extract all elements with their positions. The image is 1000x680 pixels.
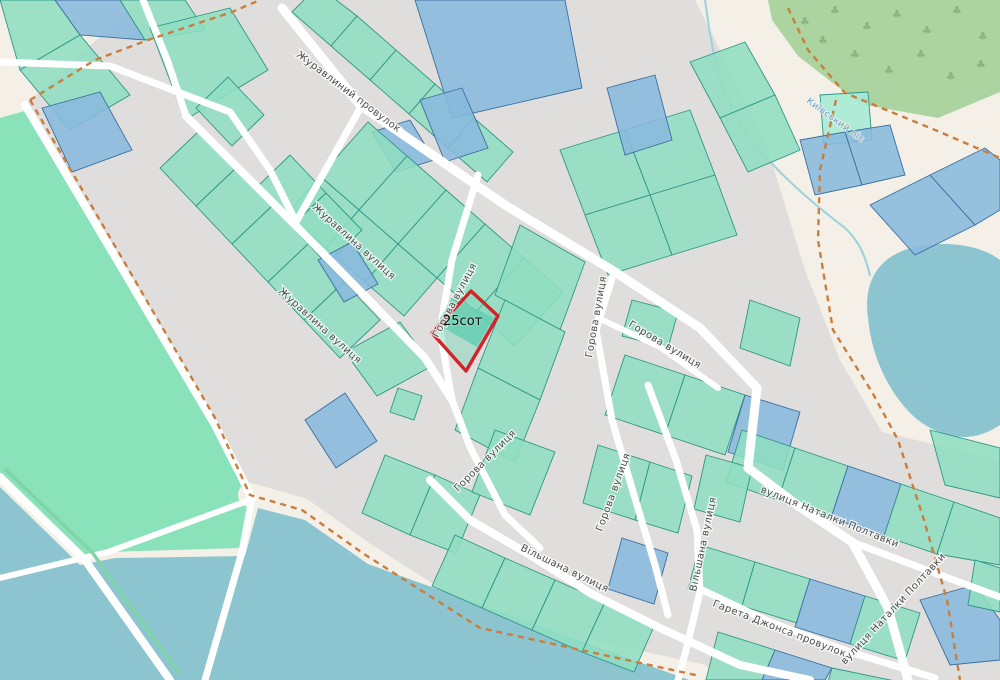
tree-icon: ♣ [892, 8, 902, 21]
tree-icon: ♣ [976, 58, 986, 71]
tree-icon: ♣ [916, 48, 926, 61]
tree-icon: ♣ [922, 24, 932, 37]
tree-icon: ♣ [850, 48, 860, 61]
map-canvas[interactable]: ♣♣♣♣♣♣♣♣♣♣♣♣♣Журавлиний провулокЖуравлин… [0, 0, 1000, 680]
tree-icon: ♣ [862, 20, 872, 33]
tree-icon: ♣ [946, 70, 956, 83]
tree-icon: ♣ [952, 4, 962, 17]
map-svg[interactable]: ♣♣♣♣♣♣♣♣♣♣♣♣♣Журавлиний провулокЖуравлин… [0, 0, 1000, 680]
tree-icon: ♣ [818, 34, 828, 47]
tree-icon: ♣ [800, 15, 810, 28]
tree-icon: ♣ [978, 30, 988, 43]
tree-icon: ♣ [830, 4, 840, 17]
tree-icon: ♣ [884, 64, 894, 77]
